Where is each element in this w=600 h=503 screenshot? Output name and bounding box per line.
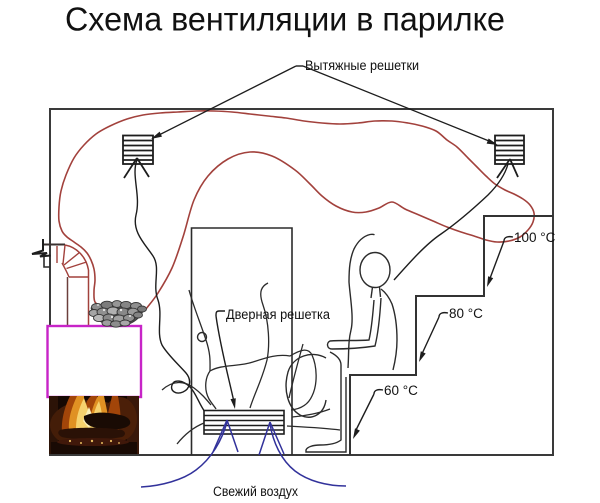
svg-text:Схема вентиляции в парилке: Схема вентиляции в парилке	[65, 1, 505, 38]
svg-text:60 °C: 60 °C	[384, 383, 418, 398]
svg-text:Свежий воздух: Свежий воздух	[213, 484, 298, 499]
svg-text:Вытяжные решетки: Вытяжные решетки	[305, 58, 419, 73]
svg-text:100 °C: 100 °C	[514, 230, 556, 245]
svg-text:Дверная решетка: Дверная решетка	[226, 307, 330, 322]
svg-text:80 °C: 80 °C	[449, 306, 483, 321]
